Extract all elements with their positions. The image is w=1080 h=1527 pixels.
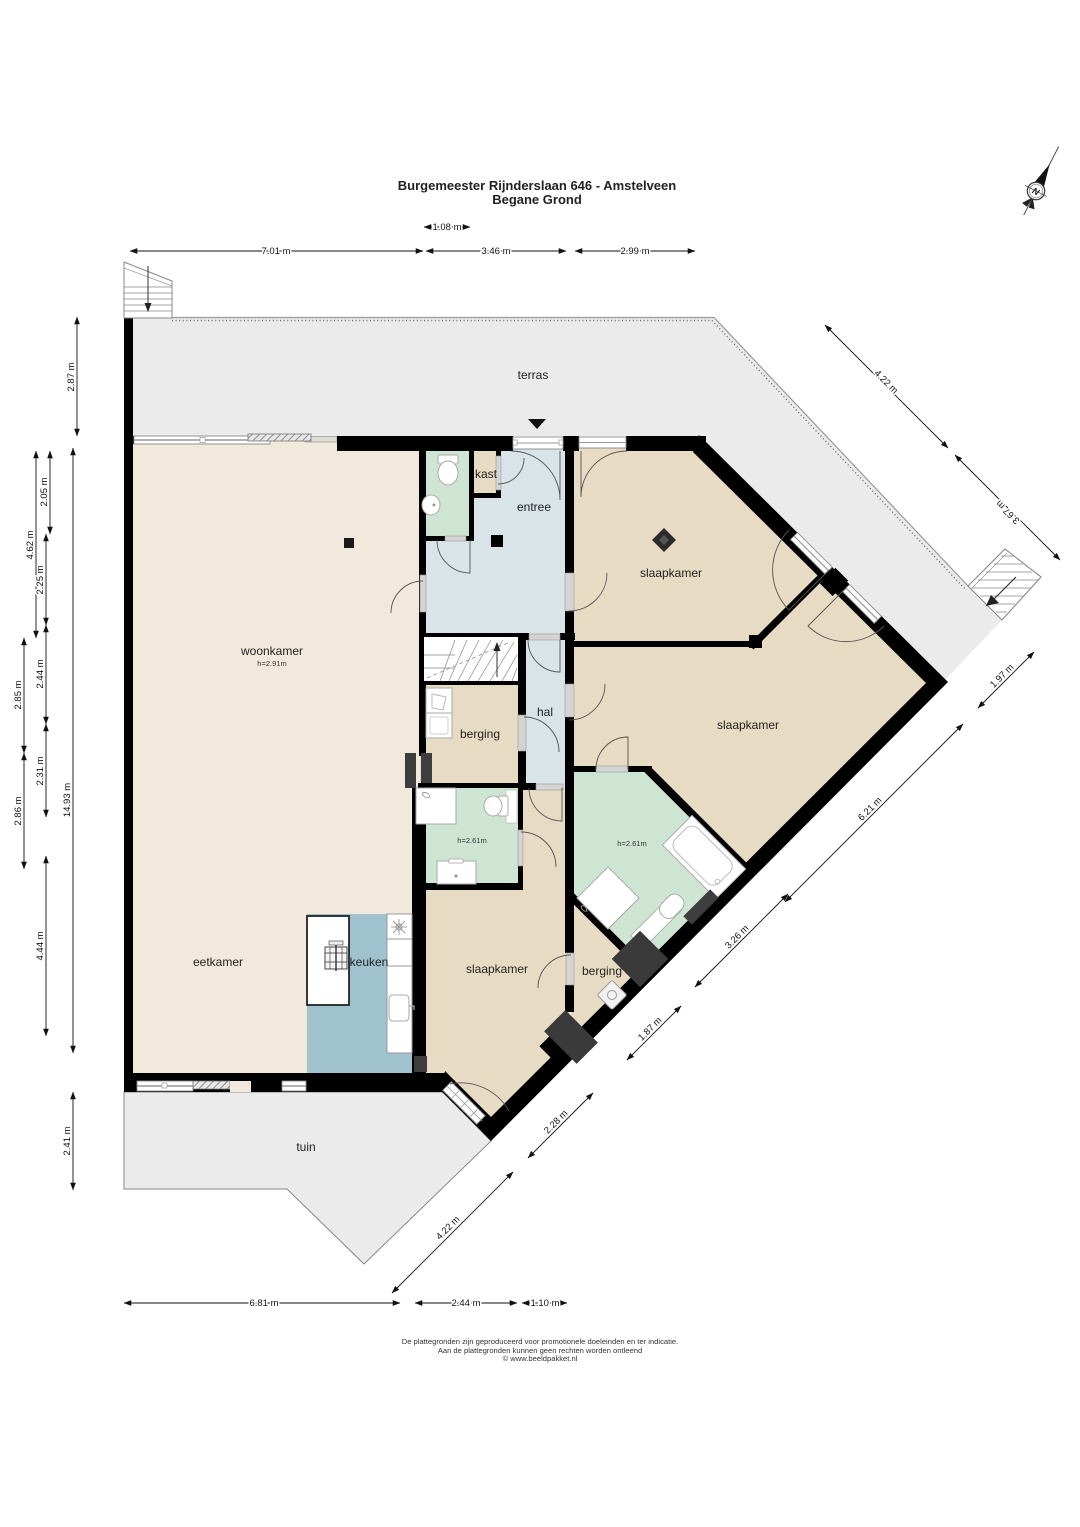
- svg-text:4.62 m: 4.62 m: [25, 530, 36, 559]
- svg-text:2.25 m: 2.25 m: [35, 565, 46, 594]
- svg-text:slaapkamer: slaapkamer: [640, 566, 702, 580]
- svg-text:2.87 m: 2.87 m: [66, 362, 77, 391]
- svg-text:kast: kast: [475, 467, 498, 481]
- svg-text:1.08 m: 1.08 m: [432, 222, 461, 233]
- svg-text:3.46 m: 3.46 m: [481, 246, 510, 257]
- svg-text:slaapkamer: slaapkamer: [717, 718, 779, 732]
- svg-text:keuken: keuken: [350, 955, 389, 969]
- svg-text:2.44 m: 2.44 m: [451, 1298, 480, 1309]
- svg-text:Burgemeester Rijnderslaan 646: Burgemeester Rijnderslaan 646 - Amstelve…: [398, 178, 676, 193]
- svg-text:eetkamer: eetkamer: [193, 955, 243, 969]
- svg-text:2.41 m: 2.41 m: [62, 1126, 73, 1155]
- svg-text:terras: terras: [518, 368, 549, 382]
- svg-text:1.10 m: 1.10 m: [530, 1298, 559, 1309]
- svg-text:h=2.61m: h=2.61m: [617, 839, 646, 848]
- svg-text:2.05 m: 2.05 m: [39, 477, 50, 506]
- svg-text:2.44 m: 2.44 m: [35, 659, 46, 688]
- svg-text:2.85 m: 2.85 m: [13, 680, 24, 709]
- svg-text:2.99 m: 2.99 m: [620, 246, 649, 257]
- svg-text:tuin: tuin: [296, 1140, 315, 1154]
- svg-text:entree: entree: [517, 500, 551, 514]
- svg-text:berging: berging: [460, 727, 500, 741]
- svg-text:woonkamer: woonkamer: [240, 644, 303, 658]
- svg-text:h=2.91m: h=2.91m: [257, 659, 286, 668]
- svg-text:hal: hal: [537, 705, 553, 719]
- svg-text:slaapkamer: slaapkamer: [466, 962, 528, 976]
- svg-text:6.81 m: 6.81 m: [249, 1298, 278, 1309]
- svg-text:2.86 m: 2.86 m: [13, 796, 24, 825]
- svg-text:© www.beeldpakket.nl: © www.beeldpakket.nl: [503, 1354, 578, 1363]
- svg-text:De plattegronden zijn geproduc: De plattegronden zijn geproduceerd voor …: [402, 1337, 679, 1346]
- svg-text:4.44 m: 4.44 m: [35, 931, 46, 960]
- svg-text:14.93 m: 14.93 m: [62, 783, 73, 817]
- svg-text:h=2.61m: h=2.61m: [457, 836, 486, 845]
- svg-text:2.31 m: 2.31 m: [35, 756, 46, 785]
- svg-text:Begane Grond: Begane Grond: [492, 192, 582, 207]
- svg-text:berging: berging: [582, 964, 622, 978]
- svg-text:7.01 m: 7.01 m: [261, 246, 290, 257]
